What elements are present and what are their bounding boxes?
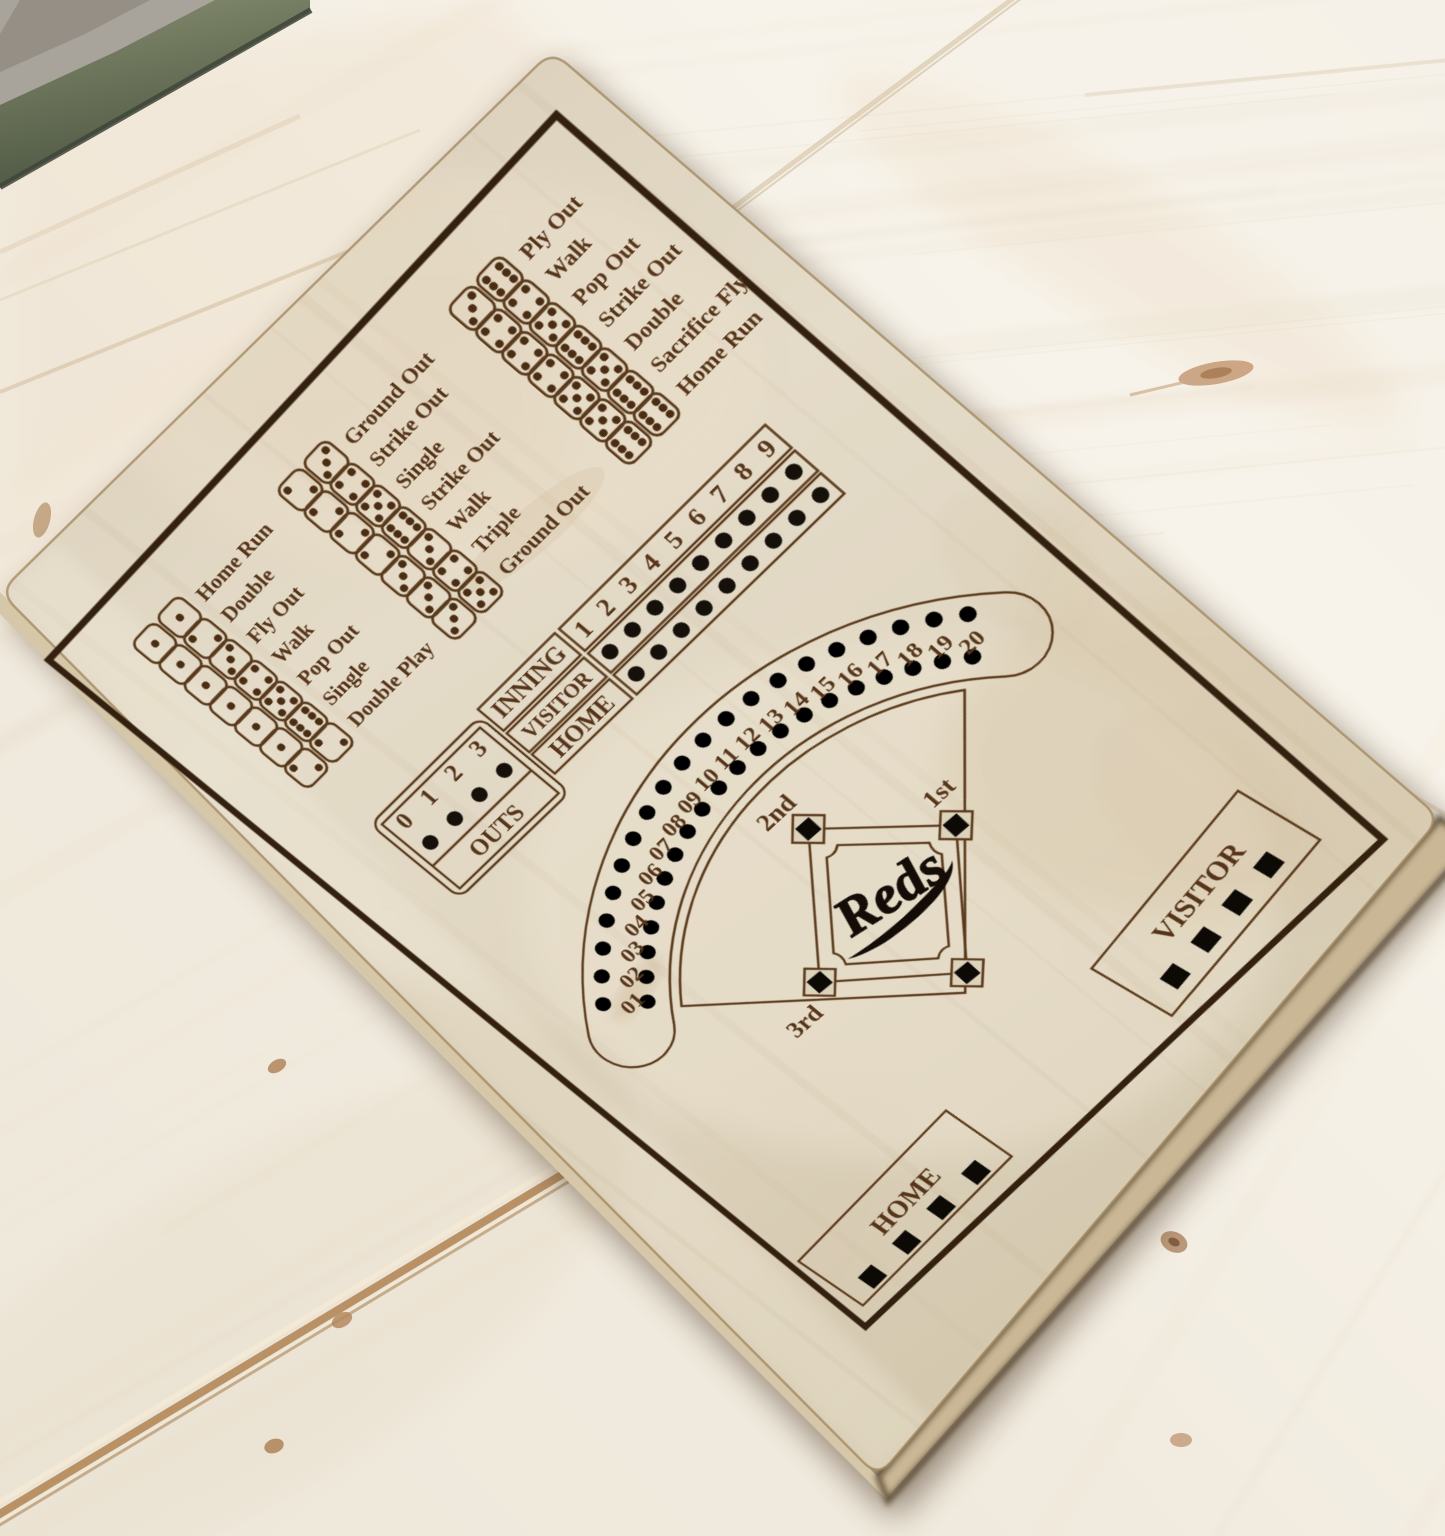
svg-text:19: 19 (921, 630, 960, 665)
svg-text:6: 6 (681, 503, 713, 532)
svg-text:2: 2 (590, 593, 622, 621)
svg-text:3: 3 (462, 735, 493, 762)
svg-text:8: 8 (727, 457, 759, 486)
svg-text:2: 2 (438, 759, 469, 786)
svg-text:3rd: 3rd (780, 1000, 829, 1043)
svg-text:05: 05 (624, 884, 661, 916)
svg-text:7: 7 (704, 480, 736, 509)
svg-text:0: 0 (389, 808, 420, 835)
svg-text:20: 20 (953, 625, 992, 660)
svg-text:9: 9 (750, 434, 783, 463)
svg-text:5: 5 (658, 526, 690, 555)
